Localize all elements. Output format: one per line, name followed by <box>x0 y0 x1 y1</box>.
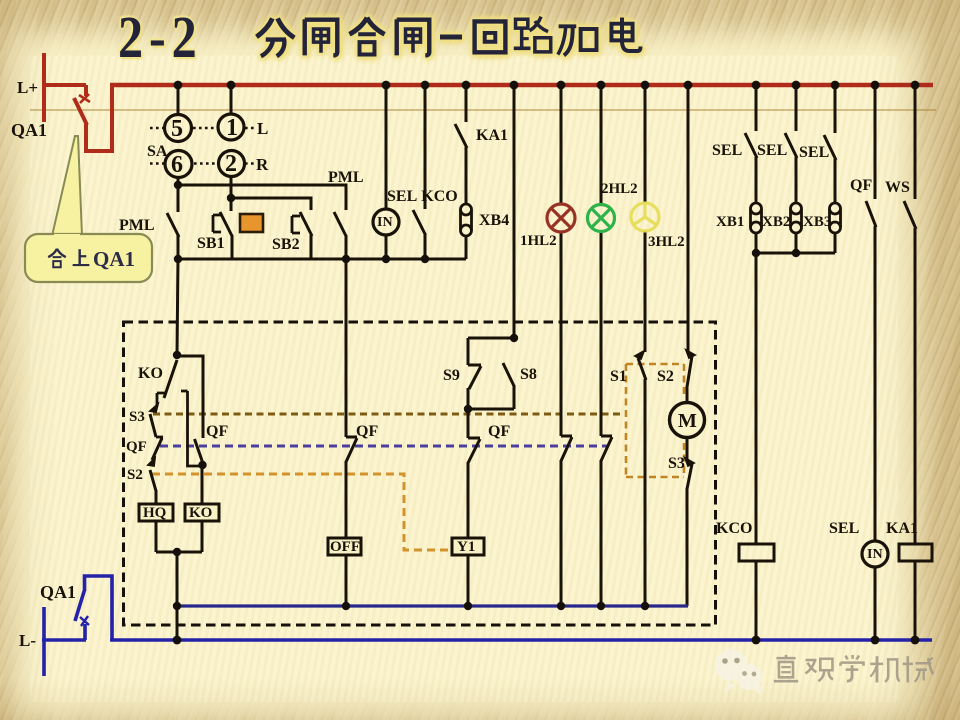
svg-text:QA1: QA1 <box>93 247 135 271</box>
